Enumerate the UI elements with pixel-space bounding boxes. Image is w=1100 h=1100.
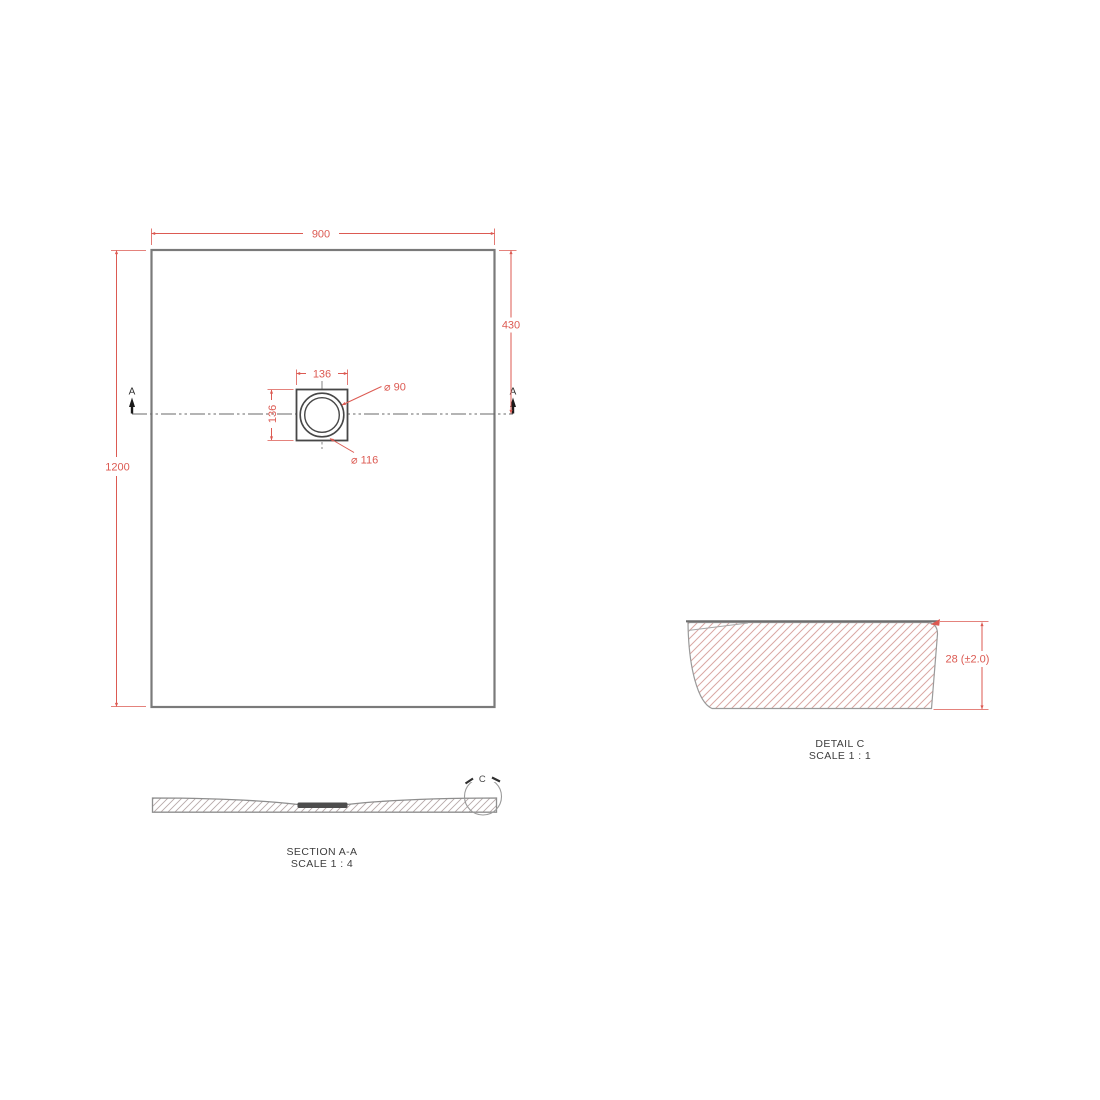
dim-136-height-label: 136 [267,405,279,423]
detail-callout-label: C [479,774,486,785]
drain [297,381,348,449]
detail-title: DETAIL C [815,738,864,750]
dim-900: 900 [152,229,495,246]
plan-view: A A 900 1200 [105,229,520,708]
dia-90-label: ⌀ 90 [384,382,406,394]
detail-profile [688,623,938,709]
dim-136-width-label: 136 [313,369,331,381]
dim-900-label: 900 [312,229,330,241]
section-marker-label: A [129,387,136,398]
dia-116-label: ⌀ 116 [351,455,378,467]
section-view: C SECTION A-A SCALE 1 : 4 [153,772,502,871]
section-marker-left: A [129,387,136,414]
section-title: SECTION A-A [287,846,358,858]
shower-tray-drawing: A A 900 1200 [0,0,1100,1100]
cad-drawing-sheet: A A 900 1200 [0,0,1100,1100]
section-scale: SCALE 1 : 4 [291,858,353,870]
dim-430-label: 430 [502,320,520,332]
section-drain-cover [298,803,348,809]
dim-28-label: 28 (±2.0) [946,654,990,666]
detail-scale: SCALE 1 : 1 [809,750,871,762]
tray-outline [152,250,495,707]
dim-28: 28 (±2.0) [934,622,998,710]
dim-1200: 1200 [105,251,146,707]
detail-view: 28 (±2.0) DETAIL C SCALE 1 : 1 [686,619,997,762]
section-arrow-icon [129,398,135,408]
dim-1200-label: 1200 [105,462,129,474]
